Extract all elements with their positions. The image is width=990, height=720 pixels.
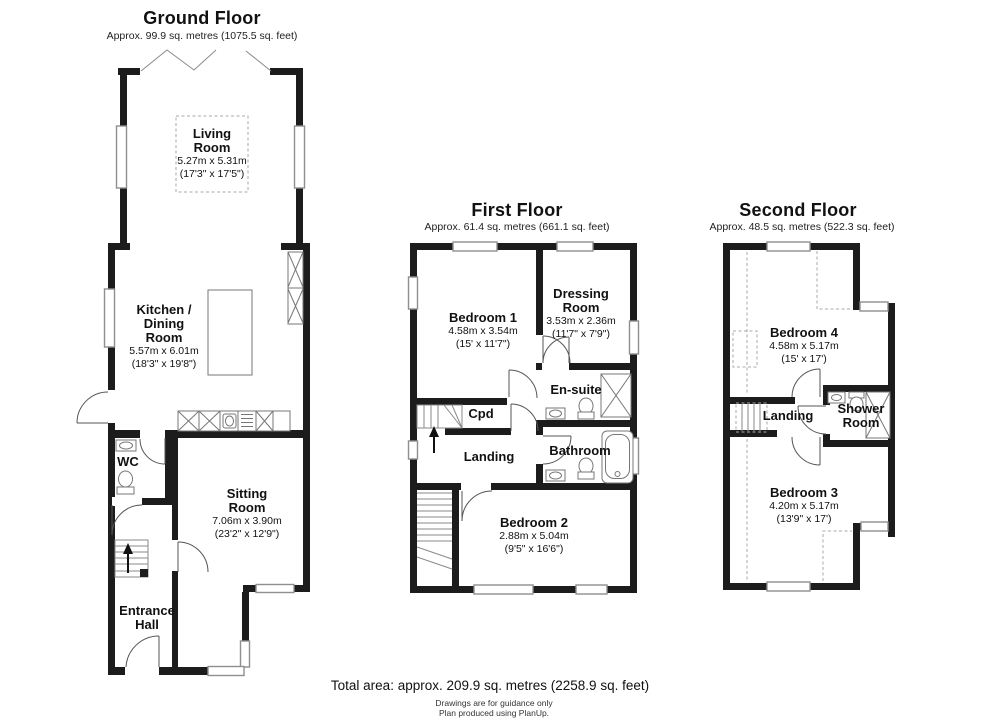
room-label-bedroom1: Bedroom 1 4.58m x 3.54m (15' x 11'7") xyxy=(448,311,517,350)
room-label-sitting-room: Sitting Room 7.06m x 3.90m (23'2" x 12'9… xyxy=(212,487,281,540)
room-label-shower-room: Shower Room xyxy=(838,402,885,430)
first-floor-title: First Floor xyxy=(471,200,562,221)
second-floor-subtitle: Approx. 48.5 sq. metres (522.3 sq. feet) xyxy=(709,221,894,233)
shower-door-gap xyxy=(822,405,831,434)
room-label-cpd: Cpd xyxy=(468,407,493,421)
room-label-landing-first: Landing xyxy=(464,450,515,464)
bifold-doors-open xyxy=(141,50,271,71)
guidance-note: Drawings are for guidance only xyxy=(435,698,552,708)
roof-window-outline xyxy=(733,331,757,367)
wc-toilet xyxy=(119,471,133,487)
room-label-entrance-hall: Entrance Hall xyxy=(119,604,175,632)
room-label-kitchen-dining: Kitchen / Dining Room 5.57m x 6.01m (18'… xyxy=(129,303,198,370)
room-label-dressing-room: Dressing Room 3.53m x 2.36m (11'7" x 7'9… xyxy=(546,287,615,340)
room-label-bathroom: Bathroom xyxy=(549,444,610,458)
room-label-landing-second: Landing xyxy=(763,409,814,423)
planup-credit: Plan produced using PlanUp. xyxy=(439,708,549,718)
first-floor-subtitle: Approx. 61.4 sq. metres (661.1 sq. feet) xyxy=(424,221,609,233)
room-label-bedroom3: Bedroom 3 4.20m x 5.17m (13'9" x 17') xyxy=(769,486,838,525)
floorplan-page: Ground Floor Approx. 99.9 sq. metres (10… xyxy=(0,0,990,720)
kitchen-island xyxy=(208,290,252,375)
room-label-bedroom2: Bedroom 2 2.88m x 5.04m (9'5" x 16'6") xyxy=(499,516,568,555)
room-label-wc: WC xyxy=(117,455,139,469)
room-label-living-room: Living Room 5.27m x 5.31m (17'3" x 17'5"… xyxy=(177,127,246,180)
second-floor-title: Second Floor xyxy=(739,200,856,221)
ground-floor-subtitle: Approx. 99.9 sq. metres (1075.5 sq. feet… xyxy=(107,30,298,42)
ground-stairs xyxy=(115,540,148,577)
ground-floor-title: Ground Floor xyxy=(143,8,260,29)
room-label-ensuite: En-suite xyxy=(550,383,601,397)
total-area-text: Total area: approx. 209.9 sq. metres (22… xyxy=(331,678,649,693)
ground-windows xyxy=(105,126,305,676)
room-label-bedroom4: Bedroom 4 4.58m x 5.17m (15' x 17') xyxy=(769,326,838,365)
